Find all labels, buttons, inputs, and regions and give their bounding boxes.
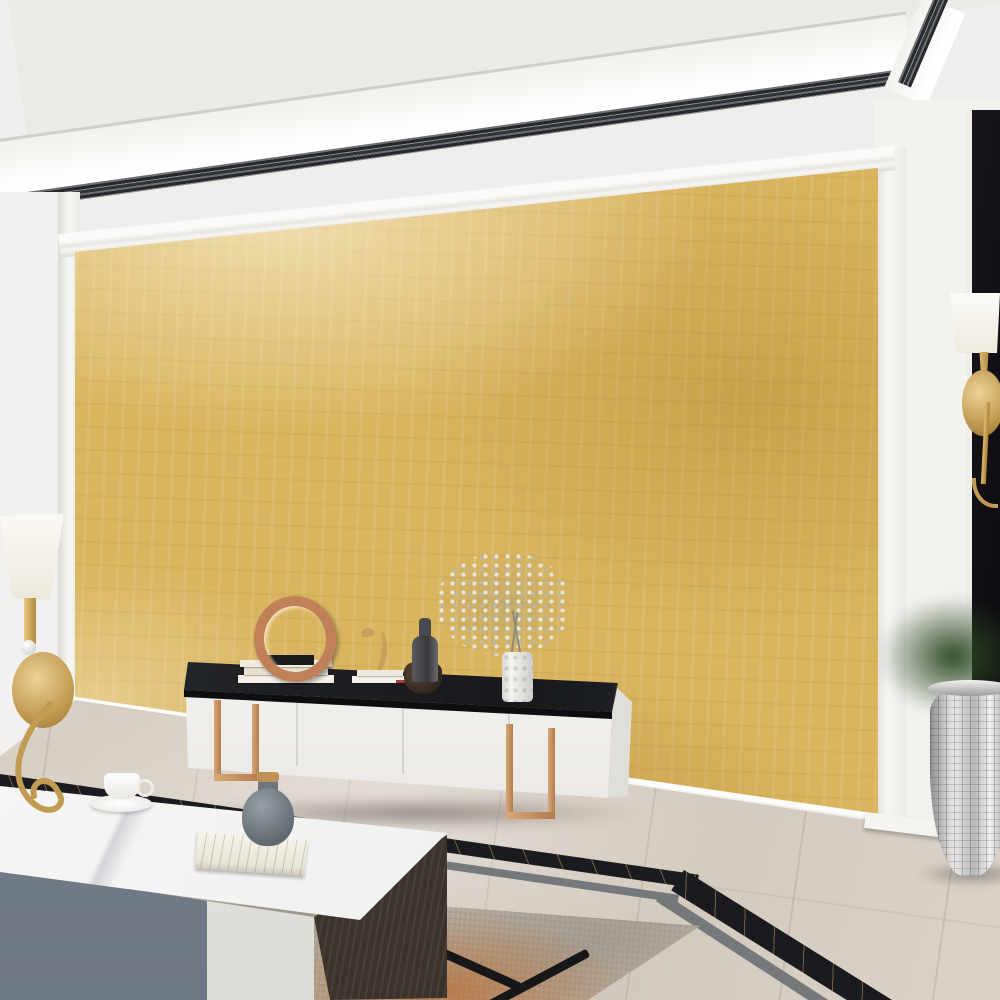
teacup bbox=[104, 773, 140, 799]
ceramic-vase bbox=[242, 788, 294, 846]
ceramic-vase-cork-lid bbox=[257, 772, 279, 782]
console-leg bbox=[506, 724, 513, 818]
left-sconce-stem bbox=[24, 598, 36, 644]
white-textured-vase bbox=[502, 652, 533, 702]
teacup-handle bbox=[136, 779, 154, 797]
console-door-seam bbox=[402, 704, 404, 774]
console-leg-foot bbox=[506, 812, 555, 819]
glass-bottle bbox=[412, 636, 438, 682]
right-sconce-backplate bbox=[962, 370, 1000, 436]
babys-breath-flowers bbox=[436, 552, 572, 656]
right-pilaster bbox=[876, 148, 906, 836]
console-door-seam bbox=[296, 700, 298, 766]
living-room-scene bbox=[0, 0, 1000, 1000]
silver-mosaic-planter bbox=[930, 686, 1000, 876]
console-leg-foot bbox=[214, 774, 259, 781]
console-leg bbox=[252, 704, 259, 780]
console-leg bbox=[548, 728, 555, 818]
chandelier bbox=[0, 0, 318, 245]
right-sconce-shade bbox=[950, 293, 1000, 353]
seahorse-figurine-head bbox=[362, 628, 374, 637]
stacked-book bbox=[357, 670, 403, 676]
left-sconce-scroll-arm bbox=[0, 700, 90, 830]
console-leg bbox=[214, 700, 221, 780]
